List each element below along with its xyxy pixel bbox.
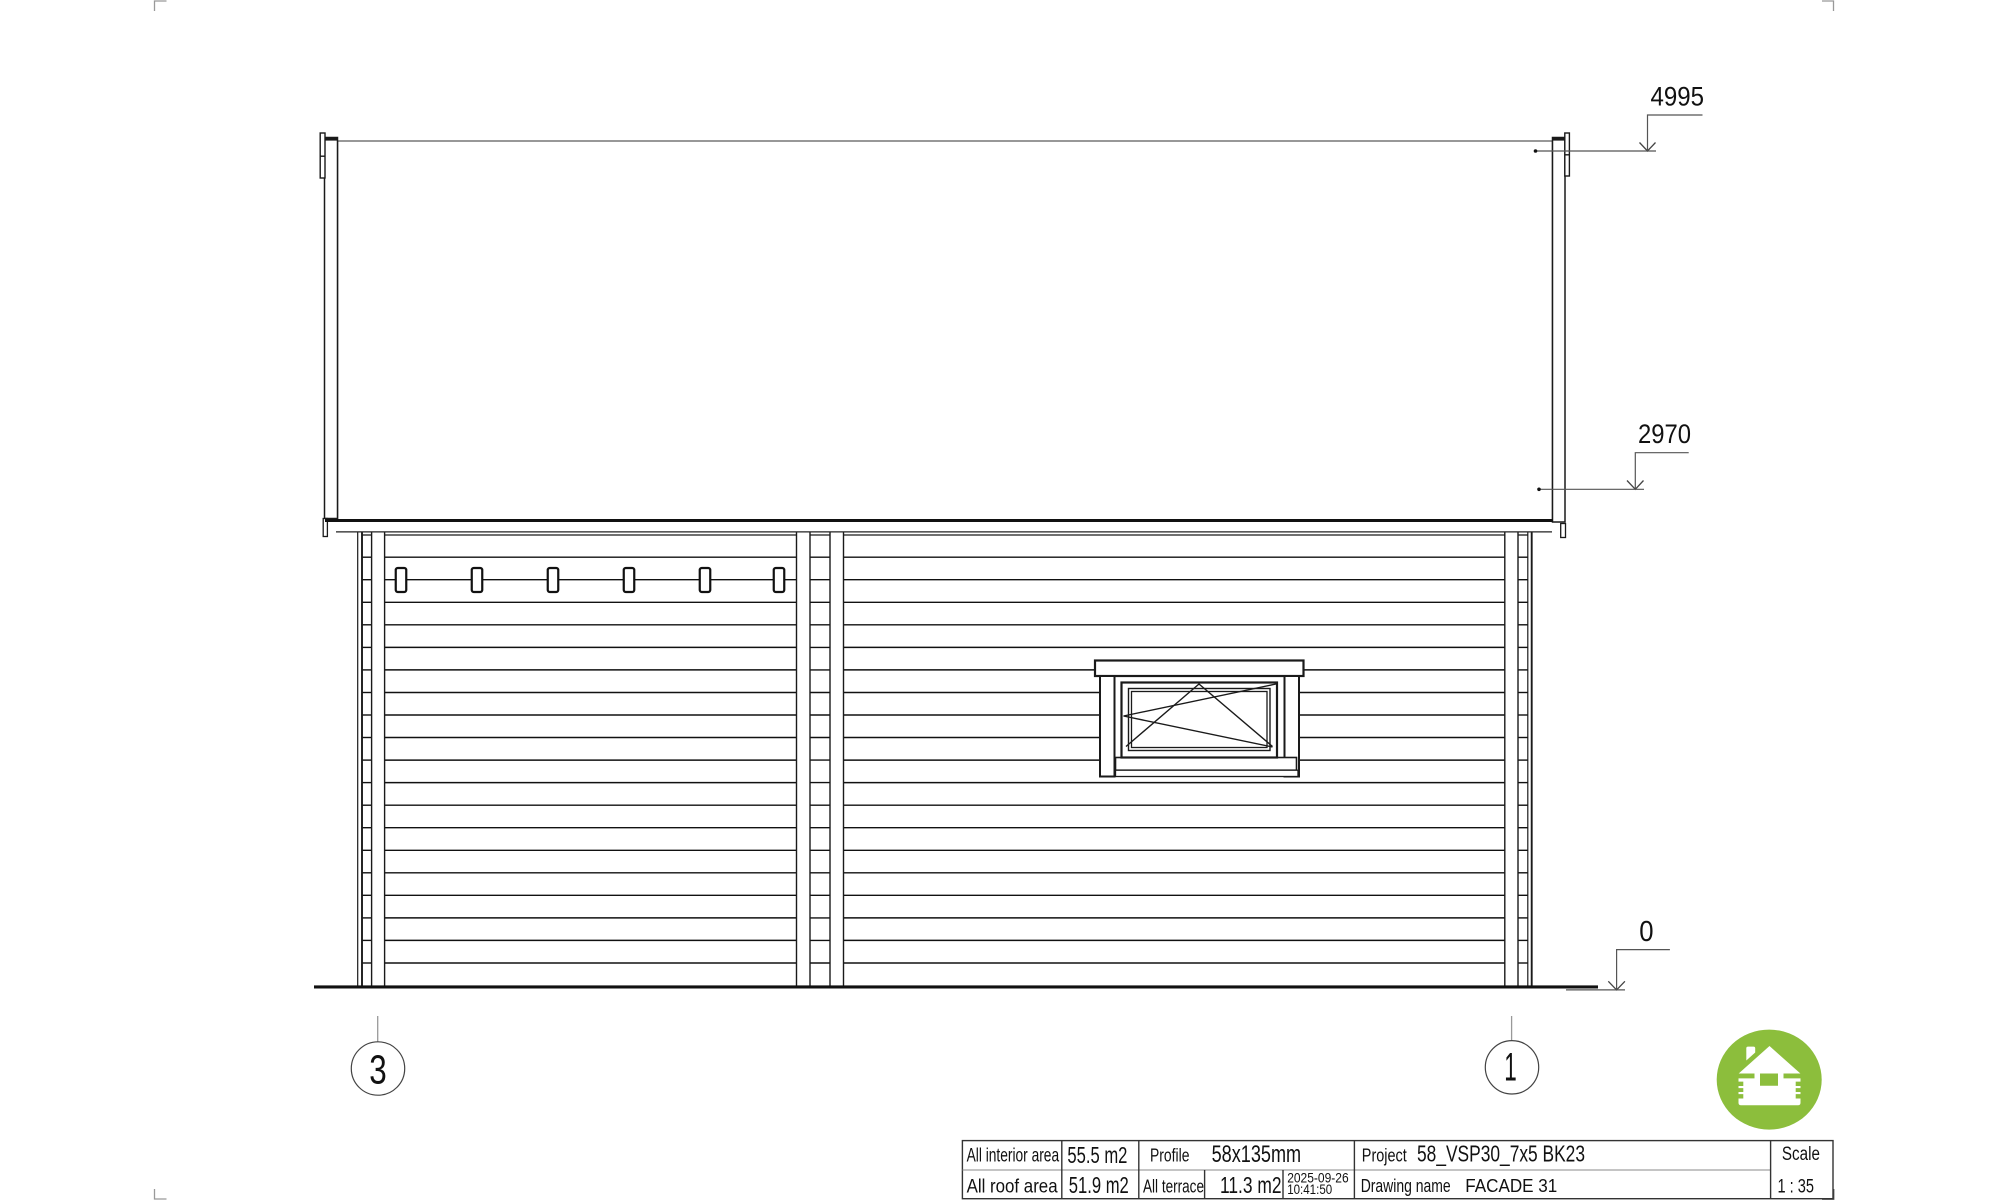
svg-text:3: 3 (369, 1046, 387, 1092)
svg-text:58x135mm: 58x135mm (1212, 1141, 1302, 1168)
svg-text:11.3 m2: 11.3 m2 (1220, 1172, 1282, 1198)
svg-text:FACADE 31: FACADE 31 (1465, 1175, 1557, 1196)
svg-text:10:41:50: 10:41:50 (1287, 1182, 1332, 1197)
svg-text:Scale: Scale (1782, 1144, 1820, 1165)
svg-text:All interior area: All interior area (967, 1146, 1060, 1167)
svg-text:51.9 m2: 51.9 m2 (1069, 1172, 1129, 1198)
svg-text:Profile: Profile (1150, 1145, 1190, 1165)
svg-text:4995: 4995 (1651, 82, 1705, 112)
svg-text:Drawing name: Drawing name (1361, 1175, 1451, 1196)
svg-text:58_VSP30_7x5 BK23: 58_VSP30_7x5 BK23 (1417, 1141, 1585, 1167)
svg-text:All terrace: All terrace (1143, 1175, 1204, 1196)
svg-text:1 : 35: 1 : 35 (1778, 1177, 1815, 1198)
svg-text:0: 0 (1639, 916, 1653, 948)
svg-text:All roof area: All roof area (967, 1176, 1058, 1197)
svg-text:55.5 m2: 55.5 m2 (1067, 1142, 1127, 1168)
svg-text:1: 1 (1504, 1046, 1517, 1090)
svg-text:Project: Project (1362, 1145, 1407, 1165)
svg-text:2970: 2970 (1638, 419, 1691, 449)
